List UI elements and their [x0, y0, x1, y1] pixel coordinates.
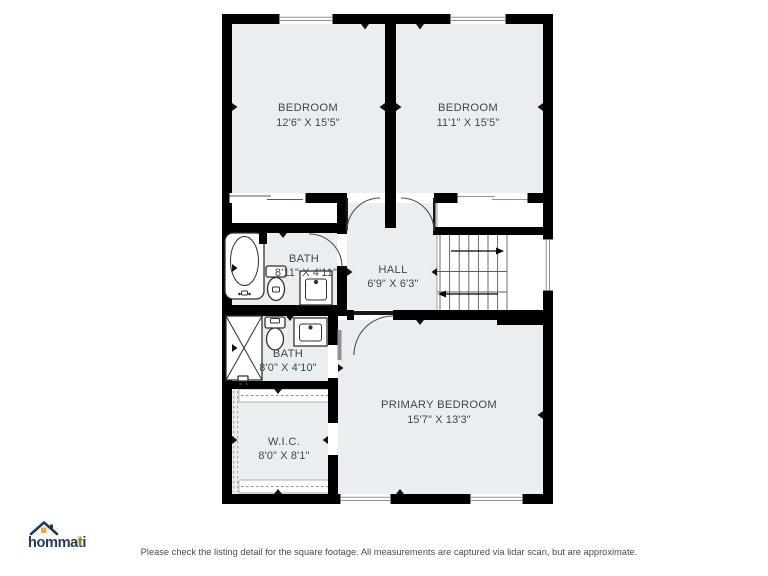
house-window-icon	[41, 528, 47, 534]
interior-window-over-stairs	[455, 193, 530, 203]
room-dims: 15'7" X 13'3"	[407, 414, 471, 426]
floor-plan-page: BEDROOM 12'6" X 15'5" BEDROOM 11'1" X 15…	[0, 0, 768, 576]
room-dims: 8'0" X 4'10"	[259, 362, 316, 374]
window	[338, 494, 393, 504]
bath-2-door-leaf	[338, 330, 342, 360]
wall-between-bedrooms	[385, 14, 396, 228]
room-dims: 8'0" X 8'1"	[258, 450, 309, 462]
disclaimer-text: Please check the listing detail for the …	[141, 547, 638, 557]
tub-partition-stub	[259, 233, 267, 244]
window	[277, 14, 335, 24]
window	[468, 494, 525, 504]
stairwell	[437, 235, 543, 310]
stair-landing-strip	[437, 203, 543, 227]
room-label: BATH	[289, 253, 319, 265]
sink-icon	[294, 318, 327, 346]
room-dims: 6'9" X 6'3"	[367, 278, 418, 290]
logo-accent-bar	[78, 536, 83, 546]
room-label: HALL	[378, 264, 407, 276]
chimney-icon	[50, 525, 53, 530]
room-label: BEDROOM	[438, 102, 498, 114]
room-label: PRIMARY BEDROOM	[381, 399, 497, 411]
room-label: BATH	[273, 348, 303, 360]
hommati-logo: hommati	[28, 523, 86, 552]
closet-sliding-doors	[227, 193, 308, 203]
room-dims: 12'6" X 15'5"	[276, 117, 340, 129]
room-label: BEDROOM	[278, 102, 338, 114]
room-dims: 8'11" X 4'11"	[275, 267, 337, 279]
shower-icon	[226, 316, 262, 385]
window	[448, 14, 508, 24]
bathtub-icon	[225, 233, 264, 299]
room-dims: 11'1" X 15'5"	[437, 117, 500, 129]
room-label: W.I.C.	[268, 436, 300, 448]
toilet-icon	[265, 317, 285, 350]
closet-nook	[232, 203, 337, 223]
stairwell-head-wall	[433, 227, 543, 235]
floor-plan: BEDROOM 12'6" X 15'5" BEDROOM 11'1" X 15…	[0, 0, 768, 576]
window	[543, 237, 553, 293]
